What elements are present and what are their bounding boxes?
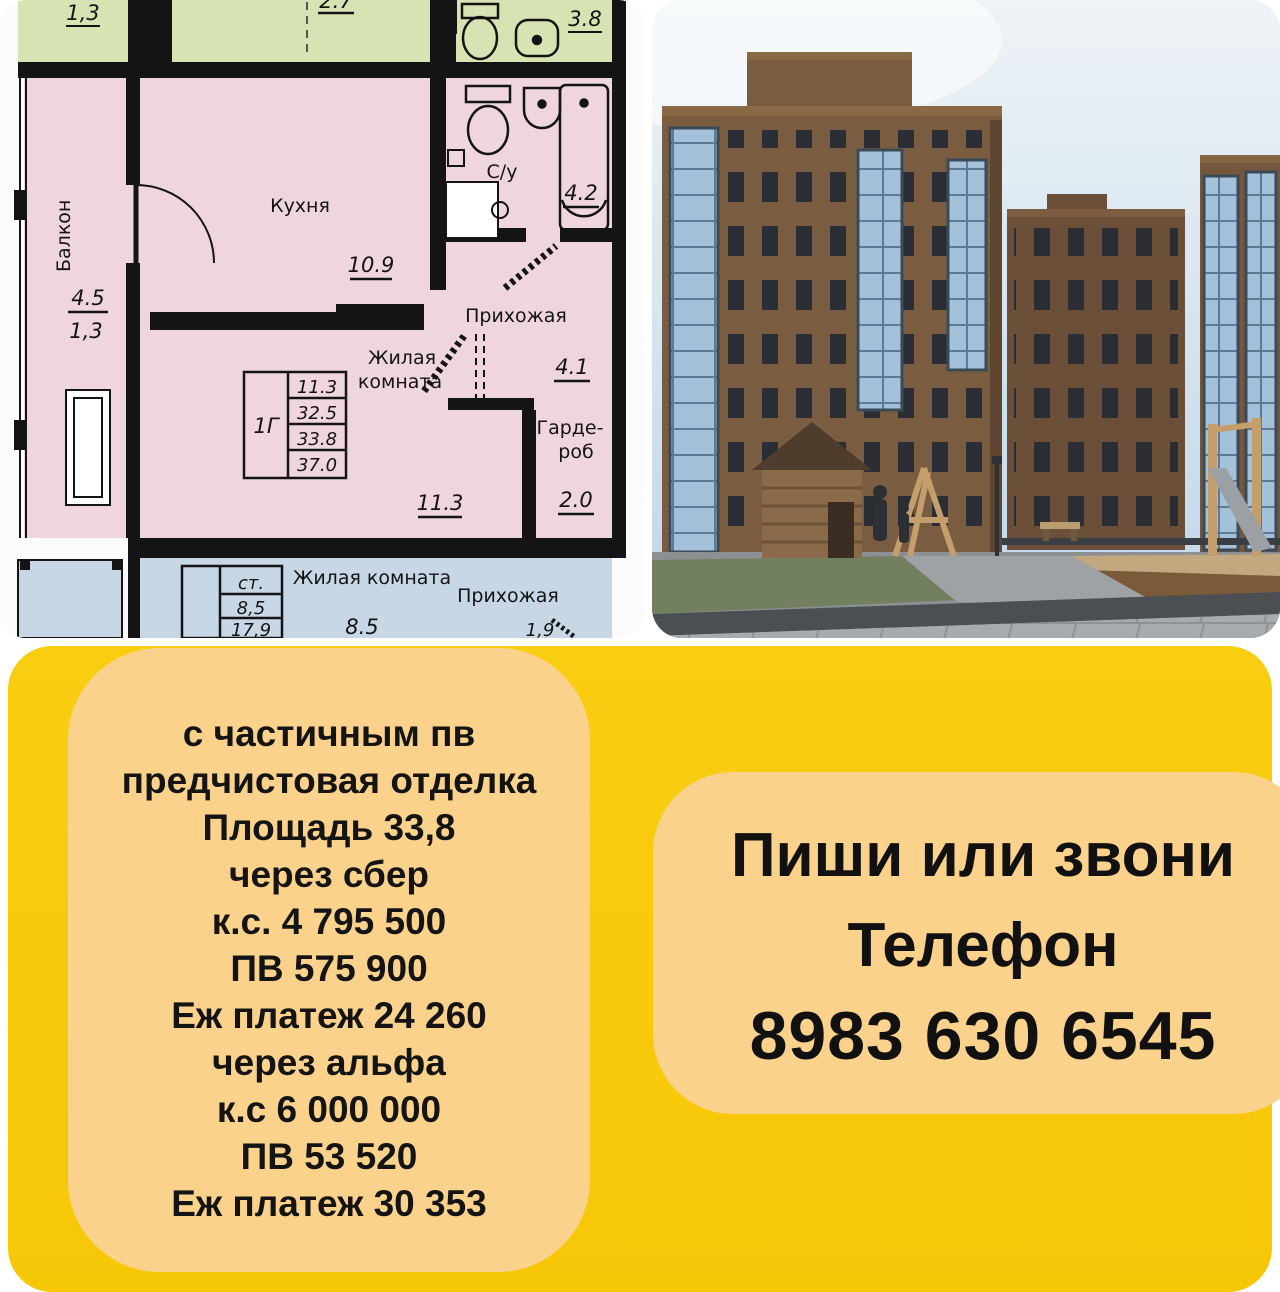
balcony-area-bottom: 1,3 <box>69 319 102 343</box>
bath-area-label: 4.2 <box>564 181 597 205</box>
lower-hall-area: 1,9 <box>526 620 555 638</box>
living-area-label: 11.3 <box>417 491 464 515</box>
living-label-1: Жилая <box>368 347 436 369</box>
lower-hall-label: Прихожая <box>457 585 559 607</box>
window-wall <box>20 78 26 538</box>
offer-card: с частичным пв предчистовая отделка Площ… <box>68 648 590 1272</box>
wardrobe-area-label: 2.0 <box>559 488 592 512</box>
offer-line: ПВ 53 520 <box>68 1133 590 1180</box>
offer-line: ПВ 575 900 <box>68 945 590 992</box>
kitchen-area-label: 10.9 <box>348 253 395 277</box>
courtyard-photo-drawing <box>652 0 1280 638</box>
building-middle <box>1007 194 1185 550</box>
lower-unit-area-2: 17,9 <box>231 620 271 638</box>
unit-area-2: 32.5 <box>297 403 337 424</box>
blue-balcony-area <box>18 560 122 638</box>
floor-plan-drawing: 1Г 11.3 32.5 33.8 37.0 ст. 8,5 17,9 1,3 … <box>0 0 644 638</box>
lower-unit-type: ст. <box>238 573 264 594</box>
phone-number: 8983 630 6545 <box>653 991 1280 1081</box>
offer-line: через сбер <box>68 851 590 898</box>
unit-type: 1Г <box>253 414 280 438</box>
contact-headline: Пиши или звони <box>653 811 1280 901</box>
hall-label: Прихожая <box>465 305 567 327</box>
phone-label: Телефон <box>653 901 1280 991</box>
window-bay <box>66 390 110 505</box>
contact-card: Пиши или звони Телефон 8983 630 6545 <box>653 772 1280 1114</box>
offer-line: предчистовая отделка <box>68 757 590 804</box>
unit-area-4: 37.0 <box>297 455 337 476</box>
floor-plan-image: 1Г 11.3 32.5 33.8 37.0 ст. 8,5 17,9 1,3 … <box>0 0 644 638</box>
offer-line: Еж платеж 30 353 <box>68 1180 590 1227</box>
wardrobe-label-2: роб <box>558 441 593 463</box>
lower-living-label: Жилая комната <box>293 567 451 589</box>
offer-line: к.с. 4 795 500 <box>68 898 590 945</box>
kitchen-label: Кухня <box>270 195 330 217</box>
promo-section: с частичным пв предчистовая отделка Площ… <box>8 646 1272 1292</box>
unit-area-3: 33.8 <box>297 429 337 450</box>
green-bath-area-label: 3.8 <box>568 7 601 31</box>
offer-line: Еж платеж 24 260 <box>68 992 590 1039</box>
lower-unit-area-1: 8,5 <box>237 598 266 619</box>
green-room-area-label: 1,3 <box>66 1 99 25</box>
offer-line: через альфа <box>68 1039 590 1086</box>
washing-machine-icon <box>446 182 508 238</box>
green-top-area-label: 2.7 <box>319 0 353 13</box>
unit-area-1: 11.3 <box>297 377 337 398</box>
lower-living-area: 8.5 <box>345 615 378 638</box>
balcony-area-top: 4.5 <box>71 286 104 310</box>
offer-line: к.с 6 000 000 <box>68 1086 590 1133</box>
living-label-2: комната <box>358 371 442 393</box>
balcony-label: Балкон <box>53 200 75 272</box>
real-estate-ad: { "plan": { "green_room_area": "1,3", "g… <box>0 0 1280 1280</box>
building-photo <box>652 0 1280 638</box>
offer-line: Площадь 33,8 <box>68 804 590 851</box>
wardrobe-label-1: Гарде- <box>537 417 604 439</box>
hall-area-label: 4.1 <box>555 355 588 379</box>
bath-label: С/у <box>487 161 518 183</box>
offer-line: с частичным пв <box>68 710 590 757</box>
